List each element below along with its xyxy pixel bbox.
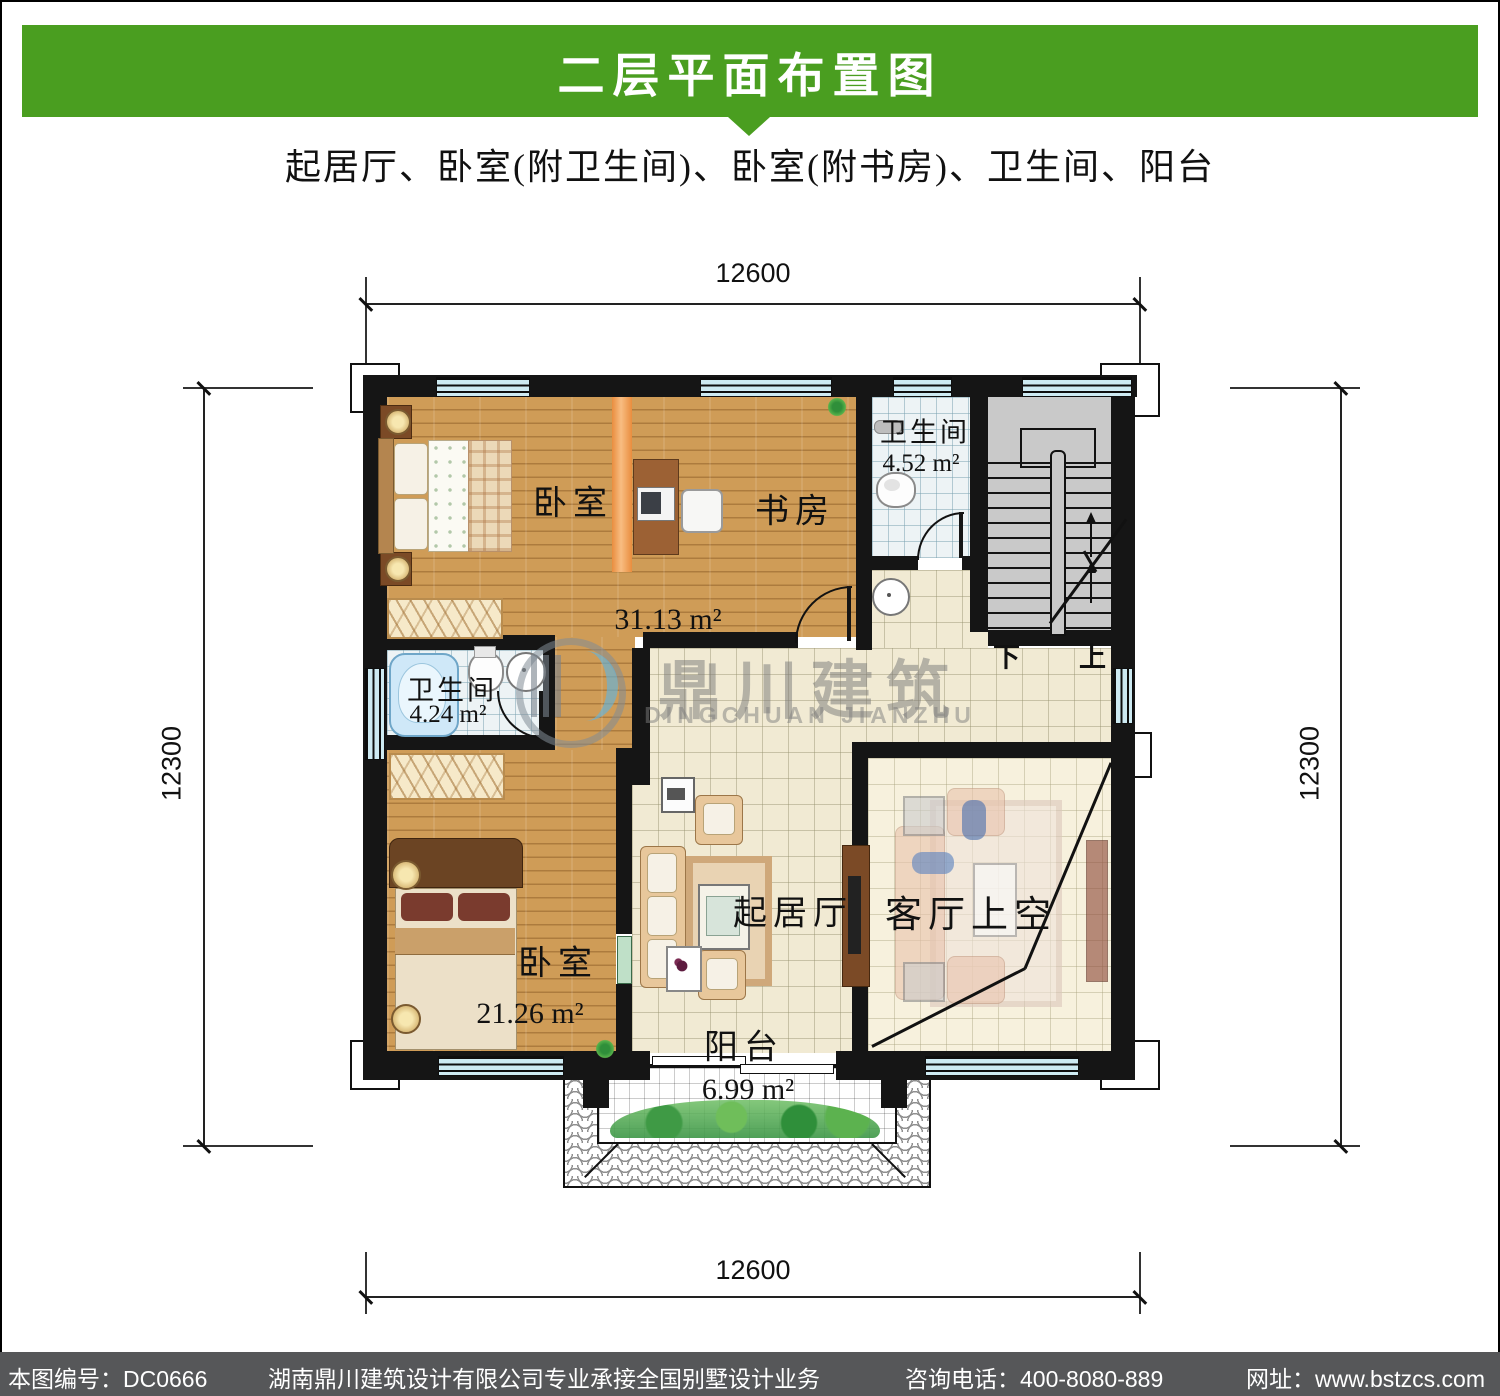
stair-up-label: 上	[1079, 636, 1109, 675]
dimension-line-left	[203, 388, 205, 1146]
wall-interior	[856, 556, 918, 570]
desk-chair	[681, 489, 723, 533]
door-leaf	[847, 586, 851, 641]
lamp-icon	[385, 409, 411, 435]
toilet-tank	[474, 646, 496, 658]
cabinet-detail	[667, 788, 685, 800]
bathroom-mid-area: 4.24 m²	[410, 701, 487, 729]
pillow	[394, 498, 428, 550]
door-leaf	[539, 691, 543, 737]
wall-interior	[856, 397, 872, 650]
page-subtitle: 起居厅、卧室(附卫生间)、卧室(附书房)、卫生间、阳台	[0, 138, 1500, 190]
lamp-icon	[391, 860, 421, 890]
window	[438, 1056, 564, 1076]
pillow	[458, 893, 510, 921]
pillow	[394, 443, 428, 495]
wall-interior	[632, 648, 650, 785]
dresser	[387, 598, 503, 639]
bed-fold	[395, 928, 515, 955]
void-side-table	[903, 962, 945, 1002]
footer-bar: 本图编号：DC0666 湖南鼎川建筑设计有限公司专业承接全国别墅设计业务 咨询电…	[0, 1352, 1500, 1396]
door-leaf	[959, 512, 963, 558]
stair-arrow-icon	[1086, 512, 1096, 523]
sink-icon	[506, 652, 546, 692]
window	[365, 668, 385, 760]
bathroom-top-area: 4.52 m²	[883, 450, 960, 478]
sink-drain	[522, 668, 526, 672]
wall-interior	[852, 742, 1113, 758]
person-icon	[912, 852, 954, 874]
balcony-area: 6.99 m²	[702, 1073, 794, 1107]
window	[1022, 377, 1132, 397]
bed-blanket	[468, 440, 512, 552]
floor-plan-page: 二层平面布置图 起居厅、卧室(附卫生间)、卧室(附书房)、卫生间、阳台 1260…	[0, 0, 1500, 1396]
dimension-left: 12300	[157, 704, 188, 824]
bedroom-bottom-label: 卧室	[518, 936, 598, 985]
page-title: 二层平面布置图	[22, 25, 1478, 117]
plant-icon	[826, 396, 848, 418]
dimension-line-right	[1340, 388, 1342, 1146]
bedroom-study-area: 31.13 m²	[614, 603, 721, 637]
stair-arrow-line	[1090, 523, 1092, 557]
partition-strip	[612, 397, 632, 572]
void-cabinet	[1086, 840, 1108, 982]
pillow	[401, 893, 453, 921]
dimension-bottom: 12600	[366, 1255, 1140, 1286]
wall-interior	[616, 984, 632, 1053]
extension-line	[365, 277, 367, 374]
plant-icon	[594, 1038, 616, 1060]
window	[893, 377, 952, 397]
study-label: 书房	[755, 484, 835, 533]
wall-east	[1111, 375, 1135, 1080]
balcony-label: 阳台	[704, 1020, 784, 1069]
bedroom-bottom-area: 21.26 m²	[476, 997, 583, 1031]
lamp-icon	[385, 556, 411, 582]
wall-interior	[616, 748, 632, 934]
living-room-label: 起居厅	[733, 886, 853, 935]
window	[1113, 668, 1133, 724]
toilet-seat	[884, 479, 900, 491]
passage-floor	[555, 637, 635, 750]
wall-interior	[363, 735, 555, 750]
stair-arrow-icon	[1086, 562, 1096, 573]
sink-drain	[887, 593, 891, 597]
extension-line	[1139, 277, 1141, 374]
sink-icon	[872, 578, 910, 616]
cushion	[703, 803, 735, 835]
cushion	[647, 853, 677, 893]
bathroom-top-label: 卫生间	[880, 411, 970, 450]
bed-headboard	[378, 438, 394, 554]
wardrobe	[389, 753, 505, 800]
banner-pointer-icon	[728, 117, 770, 136]
cushion	[647, 896, 677, 936]
title-banner: 二层平面布置图	[22, 25, 1478, 117]
stair-arrow-line	[1090, 573, 1092, 603]
lamp-icon	[391, 1004, 421, 1034]
person-icon	[962, 800, 986, 840]
bed-sheet	[428, 440, 470, 552]
void-side-table	[903, 796, 945, 836]
window	[925, 1056, 1079, 1076]
window	[436, 377, 530, 397]
website-text: 网址：www.bstzcs.com	[1246, 1360, 1485, 1394]
drawing-number: 本图编号：DC0666	[8, 1360, 207, 1394]
phone-text: 咨询电话：400-8080-889	[905, 1360, 1163, 1394]
company-text: 湖南鼎川建筑设计有限公司专业承接全国别墅设计业务	[268, 1360, 820, 1394]
door-leaf-bedroom	[617, 936, 632, 984]
cushion	[706, 958, 738, 990]
dimension-right: 12300	[1295, 704, 1326, 824]
stair-down-label: 下	[993, 636, 1023, 675]
dimension-top: 12600	[366, 258, 1140, 289]
bedroom-top-label: 卧室	[533, 476, 613, 525]
window	[700, 377, 832, 397]
dimension-line-bottom	[366, 1296, 1140, 1298]
void-label: 客厅上空	[885, 884, 1057, 938]
monitor-screen	[641, 492, 661, 514]
artwork-flower	[673, 957, 691, 975]
wall-interior	[970, 397, 988, 632]
dimension-line-top	[366, 303, 1140, 305]
